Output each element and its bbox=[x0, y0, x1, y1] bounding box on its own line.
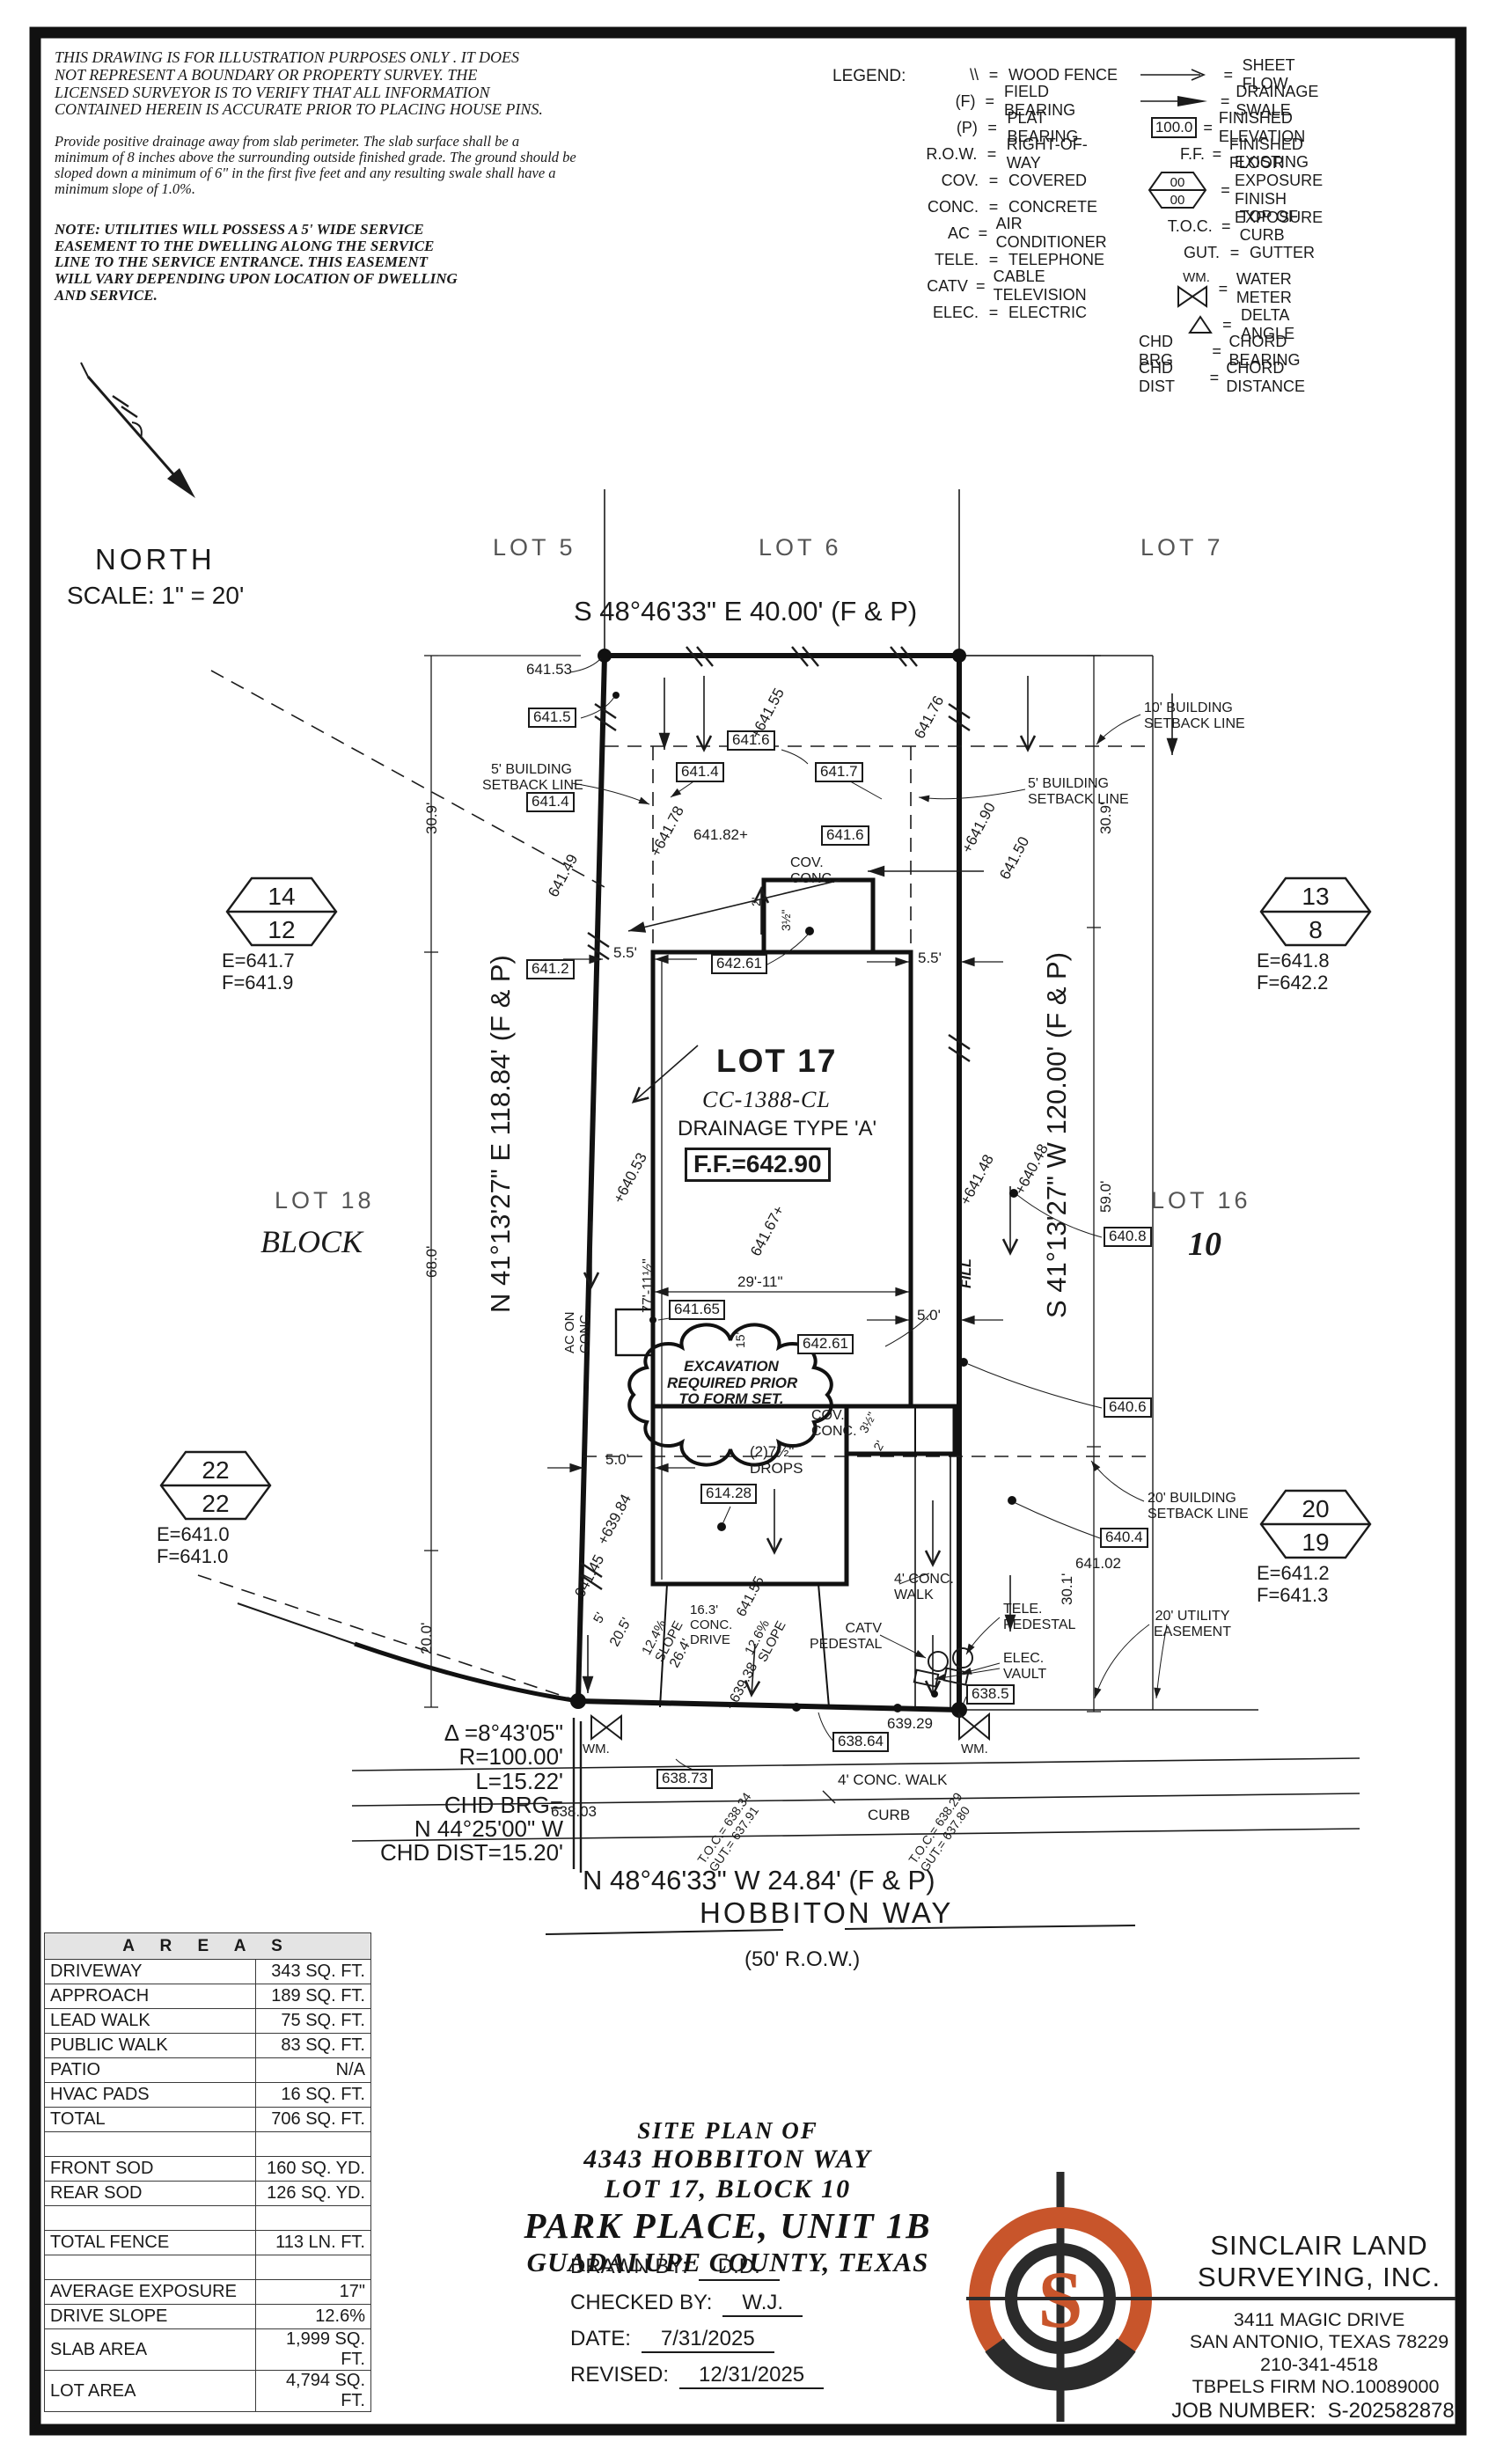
drawing-credits: DRAWN BY:D.D. CHECKED BY:W.J. DATE:7/31/… bbox=[570, 2255, 824, 2399]
bearing-bottom: N 48°46'33" W 24.84' (F & P) bbox=[583, 1866, 935, 1896]
elev-box-642-61-top: 642.61 bbox=[711, 954, 767, 974]
lot17-drainage-type: DRAINAGE TYPE 'A' bbox=[678, 1118, 876, 1140]
elev-box-641-65: 641.65 bbox=[669, 1300, 725, 1320]
street-name: HOBBITON WAY bbox=[700, 1897, 953, 1929]
legend-left-column: \\=WOOD FENCE (F)=FIELD BEARING (P)=PLAT… bbox=[910, 62, 1119, 326]
lot16-label: LOT 16 bbox=[1151, 1188, 1251, 1214]
svg-text:22: 22 bbox=[202, 1490, 229, 1517]
dim-30-9-left: 30.9' bbox=[424, 803, 441, 834]
elev-box-640-4: 640.4 bbox=[1100, 1528, 1148, 1548]
table-row: TOTAL FENCE113 LN. FT. bbox=[45, 2231, 371, 2255]
elev-box-640-6: 640.6 bbox=[1104, 1397, 1152, 1418]
exposure-values-14-12: E=641.7F=641.9 bbox=[222, 950, 295, 994]
svg-text:00: 00 bbox=[1170, 193, 1185, 208]
drainage-swale-icon bbox=[1139, 94, 1214, 108]
disclaimer-note: THIS DRAWING IS FOR ILLUSTRATION PURPOSE… bbox=[55, 49, 543, 119]
dim-20-0: 20.0' bbox=[419, 1623, 436, 1654]
table-row: AVERAGE EXPOSURE17" bbox=[45, 2280, 371, 2305]
table-row: TOTAL706 SQ. FT. bbox=[45, 2108, 371, 2132]
legend-row: GUT. =GUTTER bbox=[1139, 239, 1338, 266]
exposure-values-13-8: E=641.8F=642.2 bbox=[1257, 950, 1330, 994]
lot18-label: LOT 18 bbox=[275, 1188, 375, 1214]
table-row: DRIVEWAY343 SQ. FT. bbox=[45, 1960, 371, 1984]
elev-box-641-5: 641.5 bbox=[528, 708, 576, 728]
dim-5-5-right: 5.5' bbox=[918, 950, 942, 967]
catv-pedestal-label: CATVPEDESTAL bbox=[810, 1621, 882, 1653]
site-plan-sheet: 14 12 13 8 22 22 20 19 S THIS DRAWING IS… bbox=[0, 0, 1496, 2464]
dim-3half-top: 3½" bbox=[780, 910, 793, 931]
svg-text:13: 13 bbox=[1302, 883, 1329, 910]
dim-30-9-right: 30.9' bbox=[1098, 803, 1115, 834]
tele-pedestal-label: TELE.PEDESTAL bbox=[1003, 1602, 1075, 1633]
firm-license: TBPELS FIRM NO.10089000 bbox=[1170, 2376, 1461, 2398]
elev-641-02: 641.02 bbox=[1075, 1556, 1121, 1573]
lot17-title: LOT 17 bbox=[716, 1044, 837, 1080]
title-line: SITE PLAN OF bbox=[486, 2117, 970, 2145]
ac-on-conc-label: AC ONCONC. bbox=[563, 1311, 593, 1353]
exposure-hexagon-icon: 0000 bbox=[1139, 167, 1216, 213]
finished-floor-elevation: F.F.=642.90 bbox=[685, 1148, 831, 1182]
table-row: PATION/A bbox=[45, 2058, 371, 2083]
areas-table: A R E A S DRIVEWAY343 SQ. FT. APPROACH18… bbox=[44, 1932, 371, 2412]
street-row: (50' R.O.W.) bbox=[744, 1948, 860, 1971]
elev-box-641-7: 641.7 bbox=[815, 762, 863, 782]
legend-row: 0000 =EXISTING EXPOSUREFINISH EXPOSURE bbox=[1139, 167, 1338, 213]
bearing-left: N 41°13'27" E 118.84' (F & P) bbox=[486, 955, 516, 1313]
finished-elevation-box: 100.0 bbox=[1151, 117, 1198, 138]
water-meter-right-label: WM. bbox=[961, 1742, 988, 1757]
exposure-values-20-19: E=641.2F=641.3 bbox=[1257, 1563, 1330, 1606]
dim-2ft-top: 2' bbox=[750, 898, 763, 906]
elev-box-641-6-mid: 641.6 bbox=[821, 825, 869, 846]
conc-drive-label: 16.3'CONC.DRIVE bbox=[690, 1603, 732, 1647]
setback-10ft-label: 10' BUILDINGSETBACK LINE bbox=[1144, 700, 1245, 732]
dim-59-0: 59.0' bbox=[1098, 1181, 1115, 1213]
conc-walk-right-label: 4' CONC.WALK bbox=[894, 1572, 954, 1603]
dim-5-0-right: 5.0' bbox=[917, 1308, 941, 1324]
elev-box-641-4-b: 641.4 bbox=[526, 792, 575, 812]
utility-pedestals bbox=[914, 1648, 972, 1687]
lot6-label: LOT 6 bbox=[759, 535, 842, 561]
table-row: APPROACH189 SQ. FT. bbox=[45, 1984, 371, 2009]
lot7-label: LOT 7 bbox=[1140, 535, 1224, 561]
table-row: DRIVE SLOPE12.6% bbox=[45, 2305, 371, 2329]
sheet-flow-icon bbox=[1139, 68, 1214, 82]
elev-641-82: 641.82+ bbox=[693, 827, 748, 844]
elev-box-641-4-a: 641.4 bbox=[676, 762, 724, 782]
legend-row: CATV=CABLE TELEVISION bbox=[910, 273, 1119, 299]
bearing-top: S 48°46'33" E 40.00' (F & P) bbox=[574, 597, 917, 627]
conc-walk-bottom-label: 4' CONC. WALK bbox=[838, 1772, 947, 1789]
table-row: LEAD WALK75 SQ. FT. bbox=[45, 2009, 371, 2034]
curb-label: CURB bbox=[868, 1808, 910, 1824]
title-line: PARK PLACE, UNIT 1B bbox=[486, 2204, 970, 2247]
firm-name: SINCLAIR LAND SURVEYING, INC. bbox=[1177, 2230, 1461, 2292]
drawn-by-label: DRAWN BY: bbox=[570, 2255, 688, 2279]
drawn-by-value: D.D. bbox=[699, 2255, 780, 2281]
table-row: PUBLIC WALK83 SQ. FT. bbox=[45, 2034, 371, 2058]
svg-text:14: 14 bbox=[268, 883, 295, 910]
block-left-label: BLOCK bbox=[260, 1225, 363, 1260]
excavation-cloud-note: EXCAVATIONREQUIRED PRIORTO FORM SET. bbox=[667, 1359, 796, 1408]
lot17-code: CC-1388-CL bbox=[702, 1088, 831, 1113]
date-value: 7/31/2025 bbox=[642, 2327, 774, 2353]
table-row bbox=[45, 2132, 371, 2157]
elev-box-638-5: 638.5 bbox=[966, 1684, 1015, 1705]
water-meter-icon: WM. bbox=[1139, 270, 1210, 308]
lot5-label: LOT 5 bbox=[493, 535, 576, 561]
legend-right-column: =SHEET FLOW =DRAINAGE SWALE 100.0 =FINIS… bbox=[1139, 62, 1338, 391]
drainage-note: Provide positive drainage away from slab… bbox=[55, 134, 576, 198]
legend-row: T.O.C. =TOP OF CURB bbox=[1139, 213, 1338, 239]
svg-text:00: 00 bbox=[1170, 175, 1185, 190]
revised-value: 12/31/2025 bbox=[679, 2363, 824, 2389]
elev-639-29: 639.29 bbox=[887, 1716, 933, 1733]
elev-box-642-61-mid: 642.61 bbox=[797, 1334, 854, 1354]
firm-address: 3411 MAGIC DRIVE SAN ANTONIO, TEXAS 7822… bbox=[1177, 2309, 1461, 2376]
elec-vault-label: ELEC.VAULT bbox=[1003, 1651, 1046, 1683]
elev-box-640-8: 640.8 bbox=[1104, 1227, 1152, 1247]
north-label: NORTH bbox=[95, 544, 216, 576]
exposure-values-22-22: E=641.0F=641.0 bbox=[157, 1524, 230, 1567]
drops-label: (2)7½"DROPS bbox=[750, 1443, 803, 1477]
covered-concrete-mid-label: COV.CONC. bbox=[811, 1408, 857, 1440]
legend-title: LEGEND: bbox=[832, 67, 906, 86]
svg-text:22: 22 bbox=[202, 1456, 229, 1484]
title-line: LOT 17, BLOCK 10 bbox=[486, 2174, 970, 2204]
svg-text:19: 19 bbox=[1302, 1529, 1329, 1556]
title-line: 4343 HOBBITON WAY bbox=[486, 2145, 970, 2174]
table-row: LOT AREA4,794 SQ. FT. bbox=[45, 2371, 371, 2412]
dim-68-0: 68.0' bbox=[424, 1246, 441, 1278]
dim-15in: 15" bbox=[734, 1330, 747, 1348]
date-label: DATE: bbox=[570, 2327, 631, 2351]
dim-5-5-left: 5.5' bbox=[613, 945, 637, 962]
table-row: SLAB AREA1,999 SQ. FT. bbox=[45, 2329, 371, 2371]
svg-text:20: 20 bbox=[1302, 1495, 1329, 1522]
checked-by-value: W.J. bbox=[722, 2291, 803, 2317]
covered-concrete-top-label: COV.CONC. bbox=[790, 855, 836, 887]
curve-data: Δ =8°43'05" R=100.00' L=15.22' CHD BRG= … bbox=[377, 1721, 563, 1866]
elev-box-638-73: 638.73 bbox=[656, 1769, 713, 1789]
lot-boundary bbox=[355, 656, 959, 1710]
north-arrow-icon bbox=[81, 363, 195, 498]
scale-label: SCALE: 1" = 20' bbox=[67, 583, 244, 610]
job-number: JOB NUMBER: S-202582878 bbox=[1163, 2399, 1463, 2424]
revised-label: REVISED: bbox=[570, 2363, 669, 2387]
table-row bbox=[45, 2255, 371, 2280]
setback-20ft-label: 20' BUILDINGSETBACK LINE bbox=[1148, 1491, 1249, 1522]
checked-by-label: CHECKED BY: bbox=[570, 2291, 712, 2315]
svg-text:12: 12 bbox=[268, 916, 295, 943]
dim-5-0-left: 5.0' bbox=[605, 1452, 629, 1469]
table-row: REAR SOD126 SQ. YD. bbox=[45, 2182, 371, 2206]
fill-label: FILL bbox=[959, 1258, 975, 1288]
dim-house-width: 77'-11½" bbox=[641, 1258, 656, 1313]
legend-row: WM. =WATER METER bbox=[1139, 266, 1338, 312]
utility-easement-note: NOTE: UTILITIES WILL POSSESS A 5' WIDE S… bbox=[55, 222, 458, 304]
dim-30-1: 30.1' bbox=[1060, 1573, 1076, 1605]
legend-row: R.O.W.=RIGHT-OF-WAY bbox=[910, 141, 1119, 167]
water-meter-left-label: WM. bbox=[583, 1742, 610, 1757]
bearing-right: S 41°13'27" W 120.00' (F & P) bbox=[1042, 952, 1072, 1318]
areas-table-title: A R E A S bbox=[45, 1933, 371, 1960]
table-row: FRONT SOD160 SQ. YD. bbox=[45, 2157, 371, 2182]
elev-641-53: 641.53 bbox=[526, 662, 572, 678]
dimension-lines bbox=[424, 656, 1101, 1712]
elev-box-641-2: 641.2 bbox=[526, 959, 575, 979]
legend-row: AC=AIR CONDITIONER bbox=[910, 220, 1119, 246]
svg-text:8: 8 bbox=[1309, 916, 1323, 943]
setback-5ft-left-label: 5' BUILDINGSETBACK LINE bbox=[482, 762, 572, 794]
block-right-label: 10 bbox=[1188, 1227, 1221, 1264]
dim-29-11: 29'-11" bbox=[737, 1274, 783, 1291]
table-row bbox=[45, 2206, 371, 2231]
elev-638-03: 638.03 bbox=[551, 1804, 597, 1821]
elev-box-614-28: 614.28 bbox=[700, 1484, 757, 1504]
table-row: HVAC PADS16 SQ. FT. bbox=[45, 2083, 371, 2108]
elev-box-638-64: 638.64 bbox=[832, 1732, 889, 1752]
utility-easement-label: 20' UTILITYEASEMENT bbox=[1144, 1609, 1241, 1640]
legend-row: CHD DIST =CHORD DISTANCE bbox=[1139, 364, 1338, 391]
